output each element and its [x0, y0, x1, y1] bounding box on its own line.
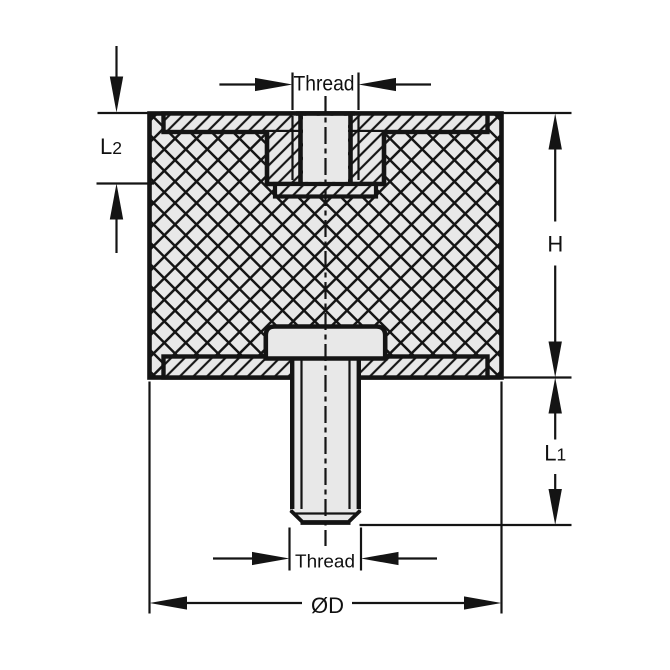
- svg-text:Thread: Thread: [295, 551, 355, 572]
- svg-text:ØD: ØD: [311, 593, 344, 618]
- svg-text:L1: L1: [544, 441, 566, 466]
- svg-text:L2: L2: [100, 134, 122, 159]
- svg-text:H: H: [547, 231, 563, 256]
- svg-text:Thread: Thread: [294, 72, 355, 96]
